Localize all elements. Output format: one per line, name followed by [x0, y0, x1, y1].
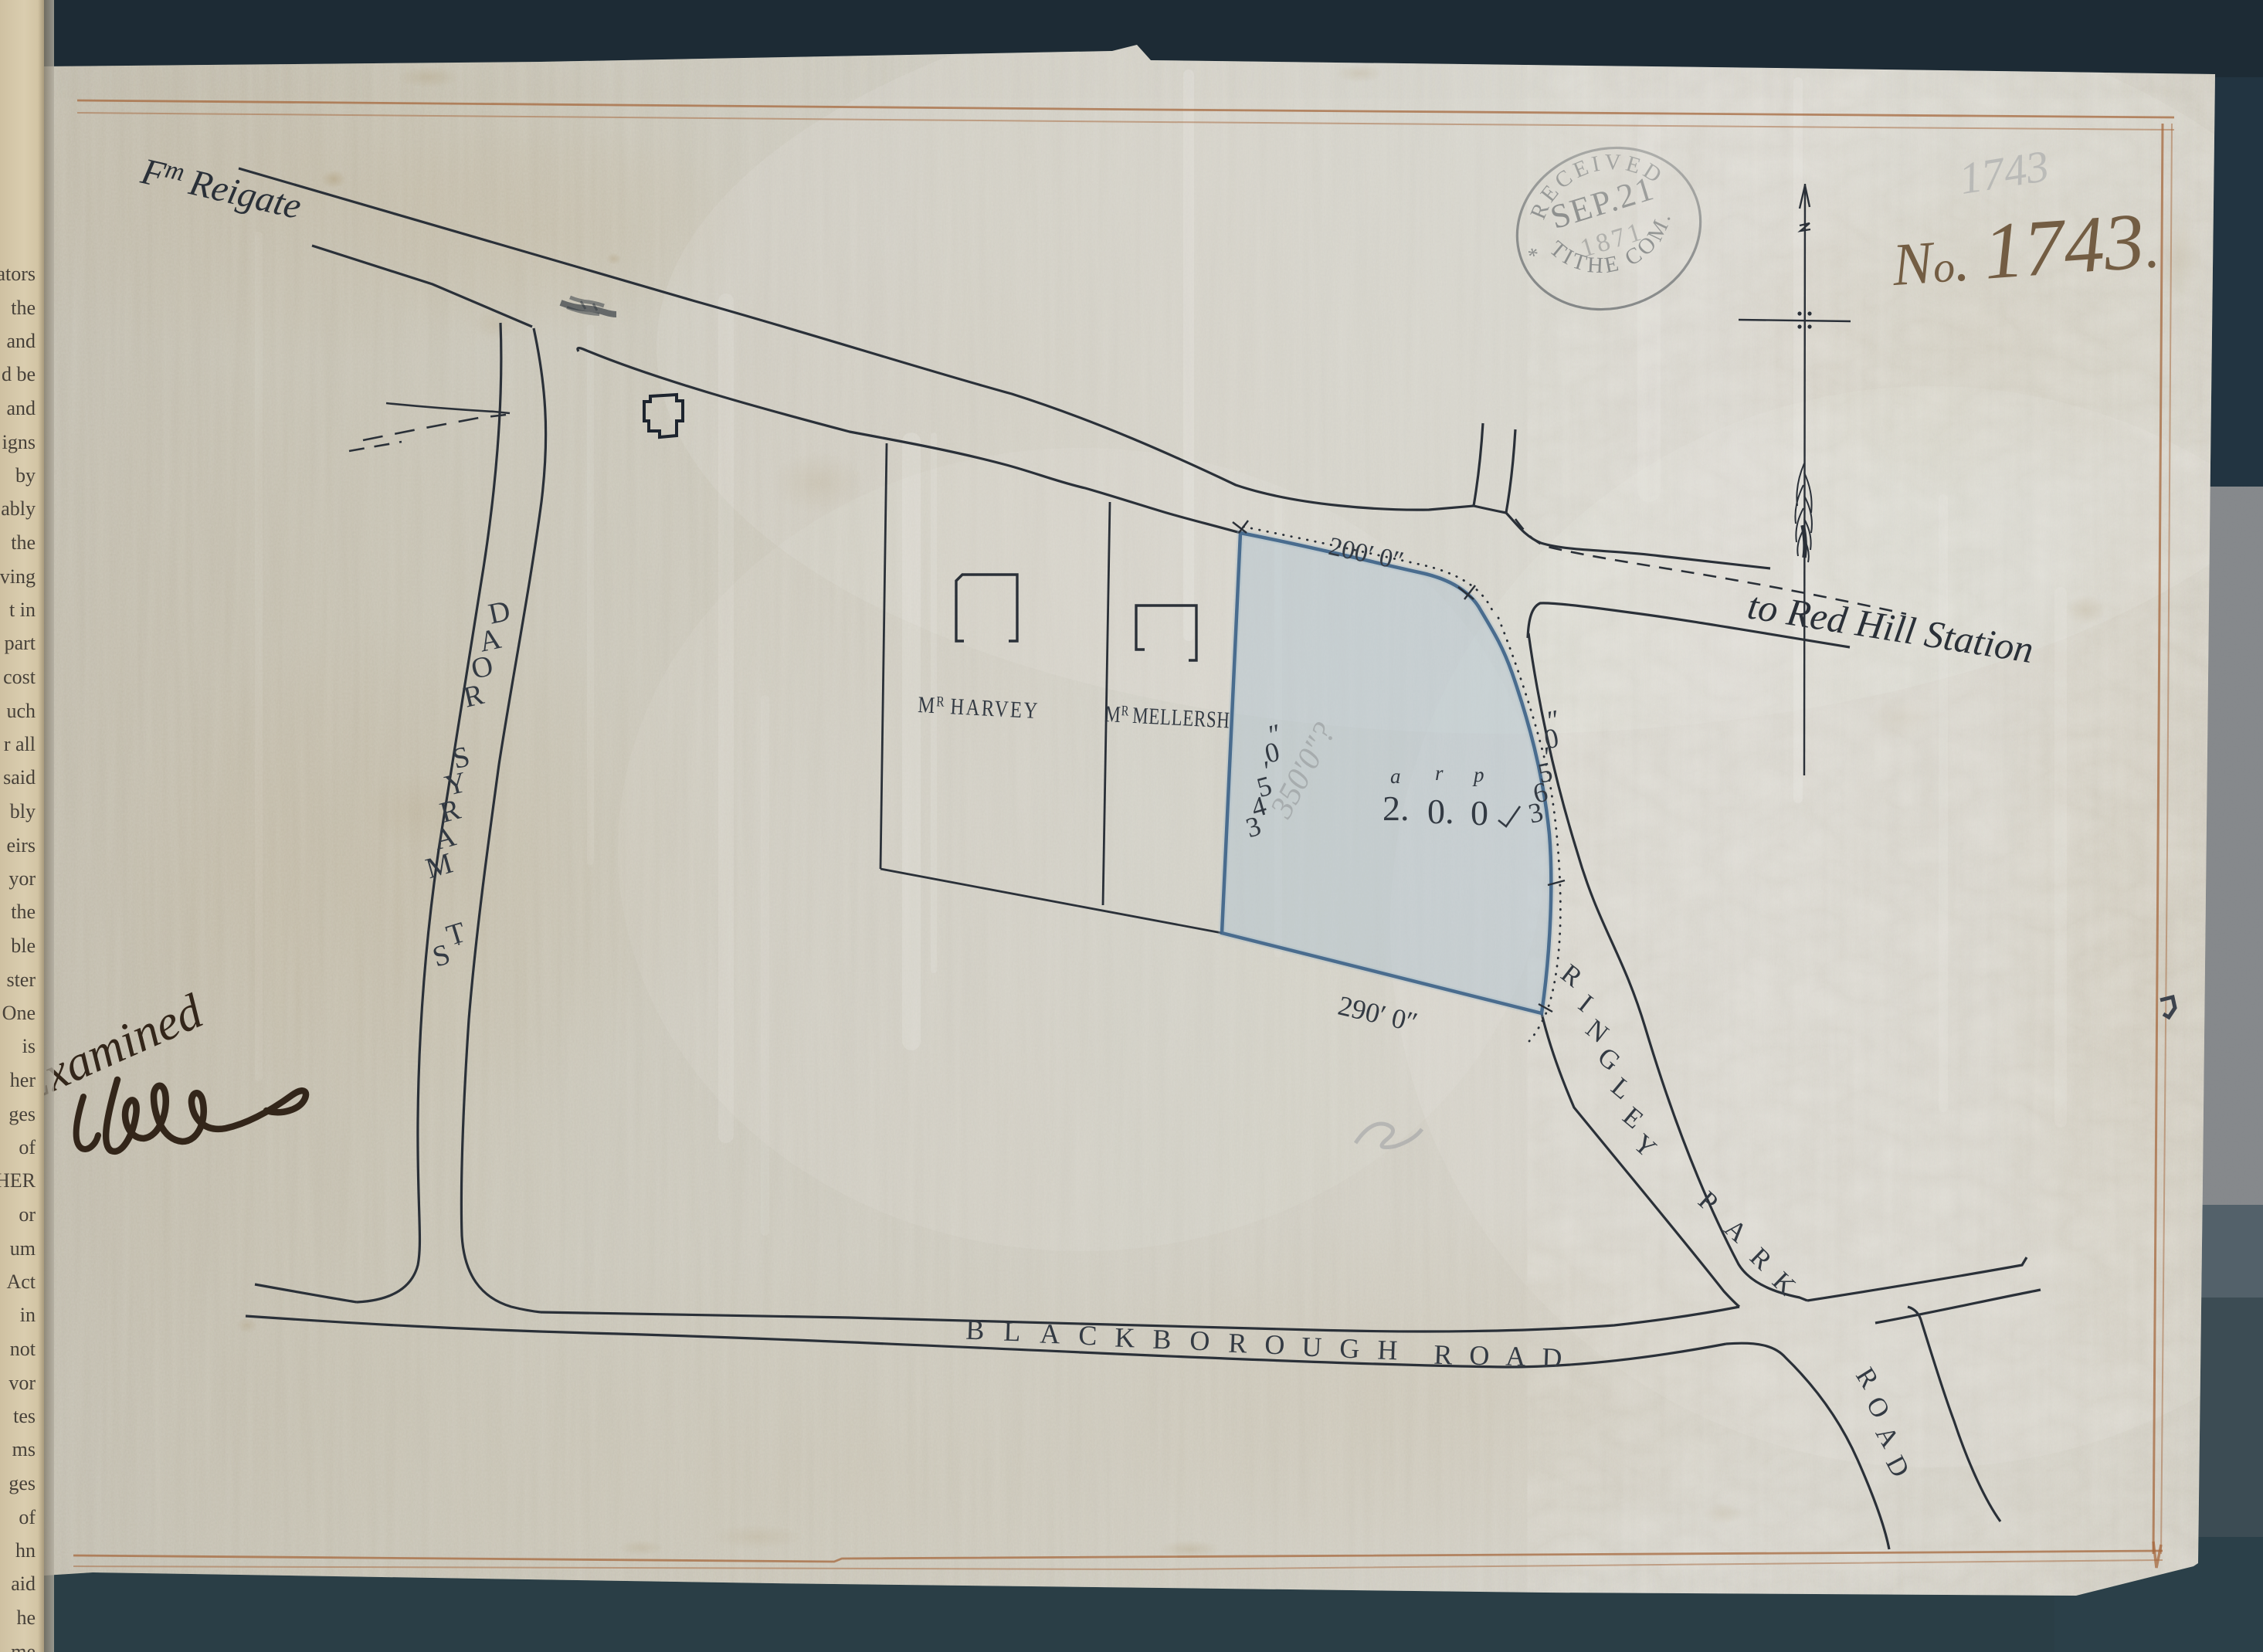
svg-text:G: G [1339, 1333, 1360, 1365]
svg-text:O: O [1264, 1329, 1285, 1361]
svg-text:0: 0 [1471, 793, 1488, 833]
svg-text:A: A [1505, 1341, 1526, 1372]
svg-text:L: L [1003, 1316, 1021, 1348]
svg-text:U: U [1301, 1331, 1322, 1363]
svg-text:H: H [1377, 1335, 1398, 1366]
svg-text:K: K [1115, 1322, 1135, 1354]
svg-text:D: D [1542, 1342, 1562, 1374]
svg-text:r: r [1435, 762, 1444, 785]
svg-text:C: C [1078, 1320, 1098, 1352]
svg-text:O: O [1189, 1325, 1210, 1357]
svg-text:0.: 0. [1427, 792, 1454, 831]
svg-text:2.: 2. [1383, 789, 1410, 828]
svg-text:R: R [1433, 1339, 1453, 1371]
svg-text:p: p [1472, 763, 1484, 786]
svg-text:B: B [1152, 1324, 1172, 1355]
svg-text:a: a [1390, 765, 1401, 788]
svg-text:R: R [1228, 1328, 1247, 1359]
svg-text:A: A [1040, 1318, 1060, 1350]
svg-text:B: B [965, 1314, 985, 1346]
svg-text:O: O [1469, 1340, 1490, 1372]
